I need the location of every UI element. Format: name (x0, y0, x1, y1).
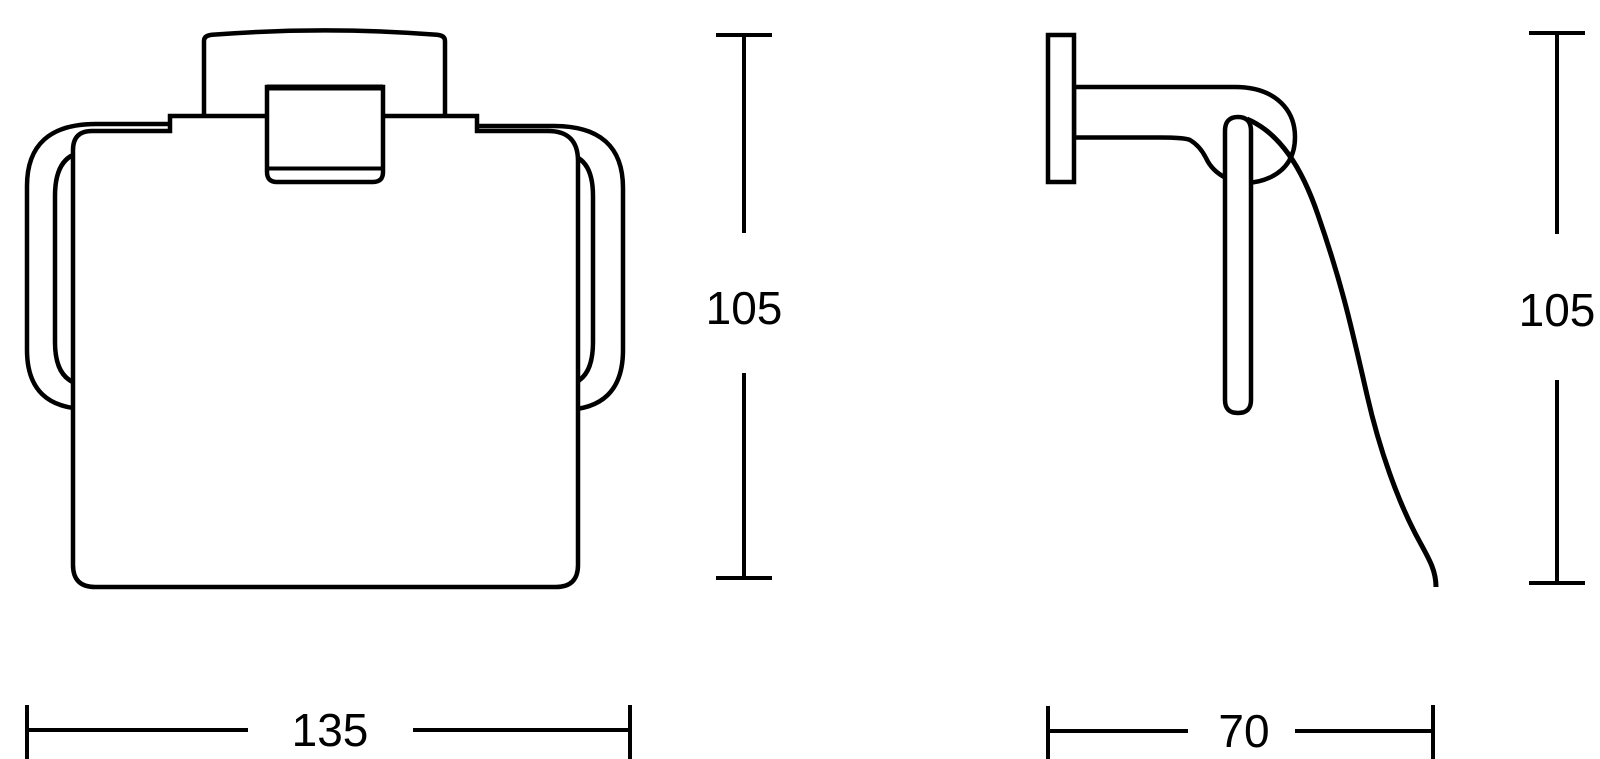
paper-sheet-curve (1247, 119, 1436, 587)
dimension-front-height: 105 (706, 35, 783, 578)
dimension-side-height: 105 (1519, 33, 1596, 583)
dim-label-side-depth: 70 (1218, 705, 1269, 757)
technical-drawing-page: 105 105 135 70 (0, 0, 1600, 759)
front-view (27, 30, 623, 587)
wall-arm-side (1074, 87, 1295, 183)
toilet-paper-holder-drawing: 105 105 135 70 (0, 0, 1600, 759)
holder-pin (1225, 117, 1251, 413)
dim-label-front-height: 105 (706, 282, 783, 334)
side-view (1048, 35, 1436, 587)
cover-front-plate (73, 116, 578, 587)
dim-label-front-width: 135 (292, 704, 369, 756)
wall-plate-side (1048, 35, 1074, 182)
dimension-front-width: 135 (27, 704, 630, 759)
dimension-side-depth: 70 (1048, 705, 1433, 759)
dim-label-side-height: 105 (1519, 284, 1596, 336)
